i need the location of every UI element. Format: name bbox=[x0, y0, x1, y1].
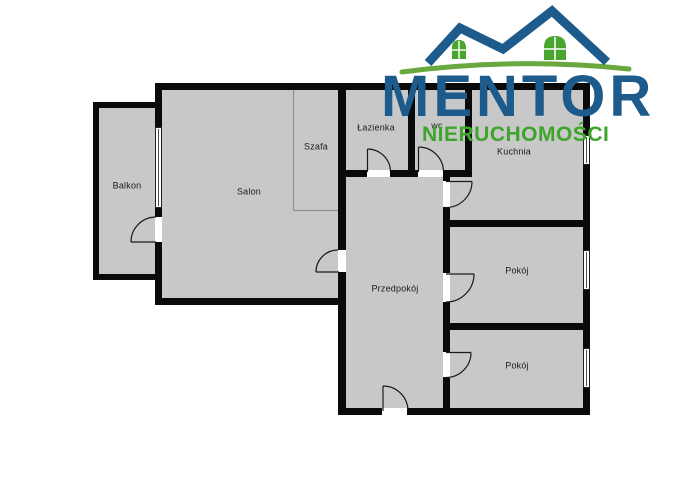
opening-salon bbox=[338, 250, 346, 272]
room-label-przedpokoj: Przedpokój bbox=[371, 285, 418, 294]
opening-lazienka bbox=[367, 170, 390, 177]
wall-room1-room2 bbox=[443, 323, 590, 330]
room-label-salon: Salon bbox=[237, 188, 261, 197]
room-label-pokoj2: Pokój bbox=[505, 362, 529, 371]
opening-entrance bbox=[382, 408, 407, 415]
wall-kitchen-room1 bbox=[443, 220, 590, 227]
wall-wc-kitchen-divider bbox=[465, 83, 472, 177]
wall-salon-bottom bbox=[155, 298, 346, 305]
wall-balkon-top bbox=[93, 102, 162, 108]
opening-balkon bbox=[155, 217, 162, 242]
wall-center-vertical bbox=[338, 83, 346, 415]
window-balkon bbox=[156, 128, 162, 208]
right-wing-floor bbox=[338, 83, 590, 415]
page: Balkon Salon Szafa Łazienka wc Kuchnia P… bbox=[0, 0, 683, 500]
wall-balkon-bottom bbox=[93, 274, 162, 280]
opening-pokoj2 bbox=[443, 352, 450, 377]
window-pokoj1 bbox=[584, 251, 590, 290]
room-label-pokoj1: Pokój bbox=[505, 267, 529, 276]
wall-balkon-left bbox=[93, 102, 99, 280]
wall-bottom bbox=[338, 408, 590, 415]
wall-top bbox=[155, 83, 590, 90]
floor-plan bbox=[0, 0, 683, 500]
wall-bath-wc-divider bbox=[408, 83, 415, 177]
room-label-wc: wc bbox=[431, 122, 442, 131]
room-label-balkon: Balkon bbox=[113, 182, 142, 191]
room-label-kuchnia: Kuchnia bbox=[497, 148, 531, 157]
opening-wc bbox=[418, 170, 443, 177]
opening-kuchnia bbox=[443, 181, 450, 207]
window-pokoj2 bbox=[584, 349, 590, 388]
window-kuchnia bbox=[584, 136, 590, 165]
opening-pokoj1 bbox=[443, 273, 450, 302]
balkon-floor bbox=[93, 102, 162, 280]
room-label-lazienka: Łazienka bbox=[357, 124, 395, 133]
room-label-szafa: Szafa bbox=[304, 143, 328, 152]
